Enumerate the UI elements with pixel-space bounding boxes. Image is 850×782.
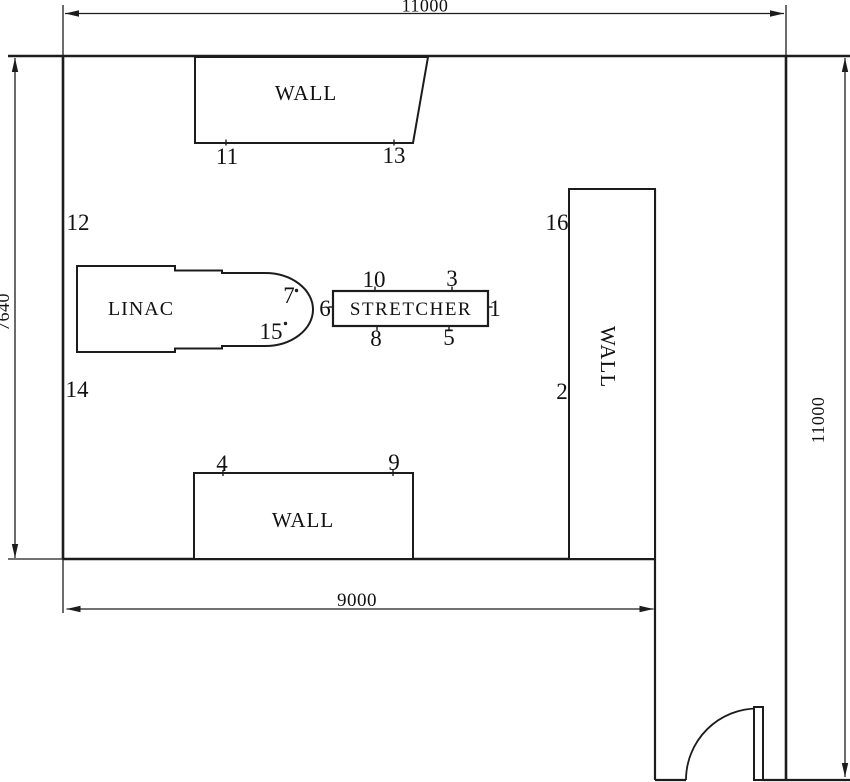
arrow-down-icon xyxy=(842,763,848,777)
linac-label: LINAC xyxy=(108,298,174,320)
stretcher-label: STRETCHER xyxy=(350,299,472,320)
point-label-13: 13 xyxy=(383,143,406,168)
floor-plan-svg: 11000 7640 11000 9000 WALL WALL WALL LIN… xyxy=(0,0,850,782)
arrow-down-icon xyxy=(12,544,18,558)
arrow-right-icon xyxy=(640,606,654,612)
arrow-up-icon xyxy=(12,58,18,72)
point-label-9: 9 xyxy=(388,450,400,475)
arrow-right-icon xyxy=(770,10,784,17)
arrow-left-icon xyxy=(67,606,81,612)
arrow-up-icon xyxy=(842,58,848,72)
dimension-value-left: 7640 xyxy=(0,293,13,331)
point-label-7: 7 xyxy=(283,283,295,308)
dimension-value-top: 11000 xyxy=(402,0,449,16)
right-wall-label: WALL xyxy=(596,326,620,388)
point-label-15: 15 xyxy=(260,319,283,344)
bottom-wall-label: WALL xyxy=(272,508,334,532)
linac-room-floor-plan: 11000 7640 11000 9000 WALL WALL WALL LIN… xyxy=(0,0,850,782)
top-wall-label: WALL xyxy=(275,81,337,105)
point-label-10: 10 xyxy=(363,267,386,292)
point-label-4: 4 xyxy=(216,451,228,476)
dimension-value-right: 11000 xyxy=(808,397,828,444)
dot-point-7 xyxy=(295,289,298,292)
dimension-lines xyxy=(12,10,848,777)
point-label-14: 14 xyxy=(66,377,90,402)
point-label-5: 5 xyxy=(443,325,455,350)
point-label-16: 16 xyxy=(546,210,569,235)
room-outline xyxy=(8,5,850,780)
door-swing-arc xyxy=(686,709,758,781)
dot-point-15 xyxy=(284,322,287,325)
dimension-value-bottom: 9000 xyxy=(337,590,377,611)
point-label-11: 11 xyxy=(216,144,238,169)
point-label-3: 3 xyxy=(446,266,458,291)
door-leaf xyxy=(754,707,763,780)
point-label-12: 12 xyxy=(67,210,90,235)
point-label-1: 1 xyxy=(489,296,501,321)
point-label-6: 6 xyxy=(319,296,331,321)
point-label-2: 2 xyxy=(556,379,568,404)
point-label-8: 8 xyxy=(370,326,382,351)
door xyxy=(686,707,763,780)
arrow-left-icon xyxy=(65,10,79,17)
